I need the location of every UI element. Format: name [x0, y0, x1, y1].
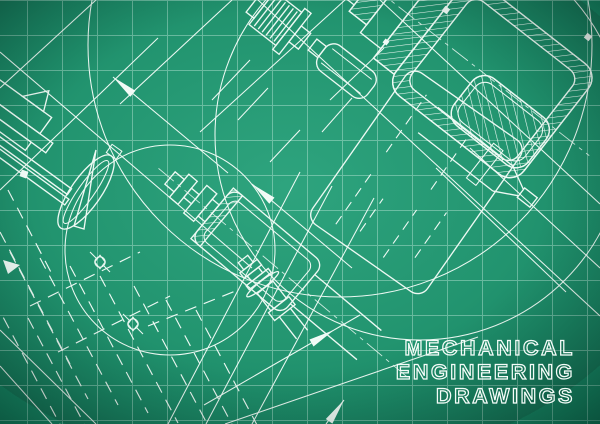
blueprint-background: MECHANICAL ENGINEERING DRAWINGS: [0, 0, 600, 424]
title-line-1: MECHANICAL: [404, 336, 575, 360]
title-line-2: ENGINEERING: [396, 360, 575, 384]
title-line-3: DRAWINGS: [436, 384, 575, 408]
blueprint-canvas: MECHANICAL ENGINEERING DRAWINGS: [0, 0, 600, 424]
